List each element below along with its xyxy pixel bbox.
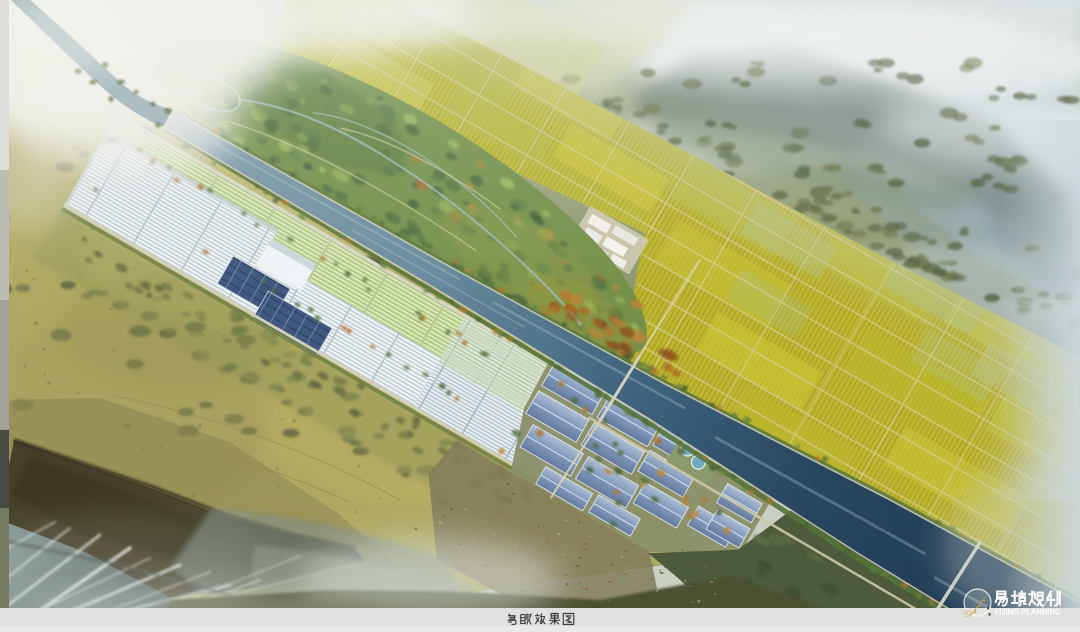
svg-text:YIJING PLANNING: YIJING PLANNING (994, 607, 1061, 616)
